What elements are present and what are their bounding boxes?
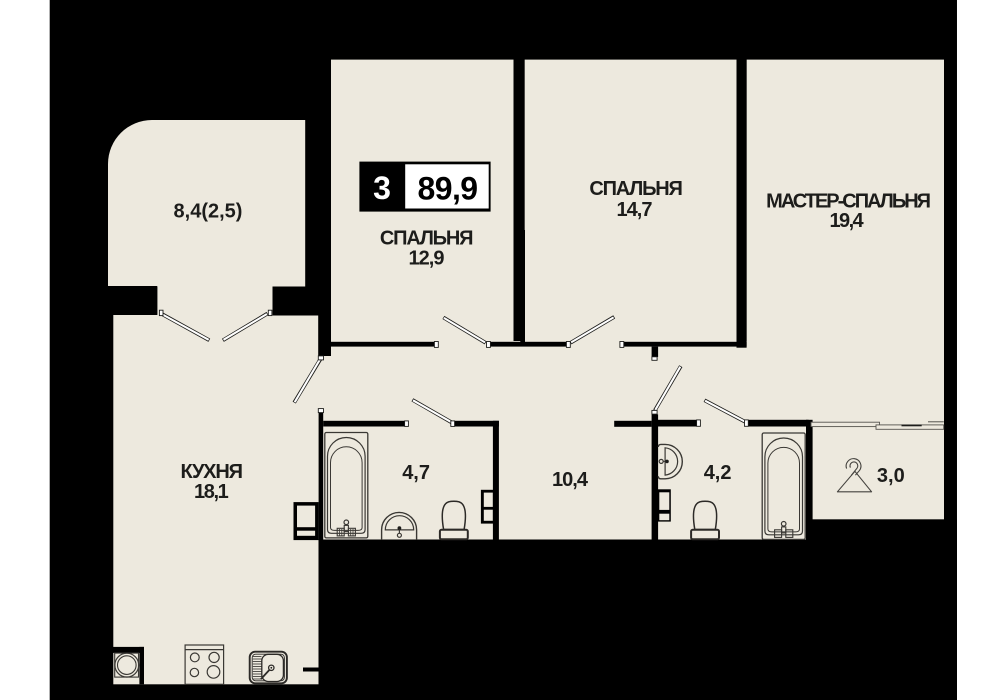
- svg-text:СПАЛЬНЯ: СПАЛЬНЯ: [380, 228, 473, 250]
- svg-text:18,1: 18,1: [194, 481, 229, 503]
- svg-text:3: 3: [373, 170, 391, 206]
- svg-text:4,7: 4,7: [402, 462, 430, 484]
- svg-text:12,9: 12,9: [409, 248, 445, 270]
- svg-text:3,0: 3,0: [877, 465, 905, 487]
- svg-text:8,4(2,5): 8,4(2,5): [174, 201, 243, 223]
- svg-text:СПАЛЬНЯ: СПАЛЬНЯ: [589, 178, 682, 200]
- svg-text:4,2: 4,2: [704, 462, 732, 484]
- svg-text:10,4: 10,4: [552, 469, 589, 491]
- svg-text:14,7: 14,7: [617, 199, 653, 221]
- svg-text:КУХНЯ: КУХНЯ: [180, 461, 242, 483]
- svg-text:МАСТЕР-СПАЛЬНЯ: МАСТЕР-СПАЛЬНЯ: [766, 190, 930, 212]
- svg-text:19,4: 19,4: [830, 210, 865, 232]
- svg-text:89,9: 89,9: [418, 171, 478, 207]
